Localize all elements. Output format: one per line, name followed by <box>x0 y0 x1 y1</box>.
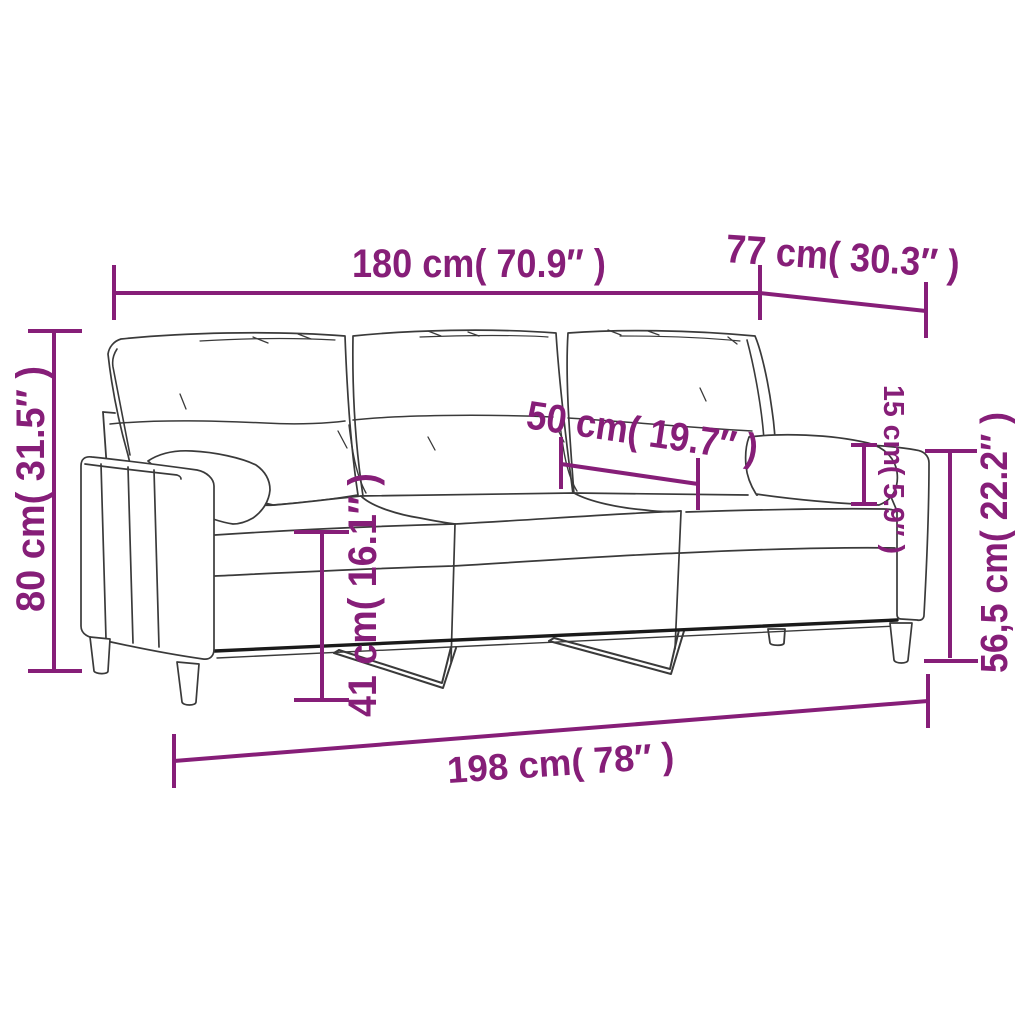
svg-text:80 cm( 31.5″ ): 80 cm( 31.5″ ) <box>9 366 53 612</box>
svg-text:56,5 cm( 22.2″ ): 56,5 cm( 22.2″ ) <box>973 412 1015 673</box>
svg-text:41 cm( 16.1″ ): 41 cm( 16.1″ ) <box>341 473 385 717</box>
svg-text:180 cm( 70.9″ ): 180 cm( 70.9″ ) <box>352 242 606 286</box>
svg-text:15 cm( 5.9″ ): 15 cm( 5.9″ ) <box>877 385 909 554</box>
